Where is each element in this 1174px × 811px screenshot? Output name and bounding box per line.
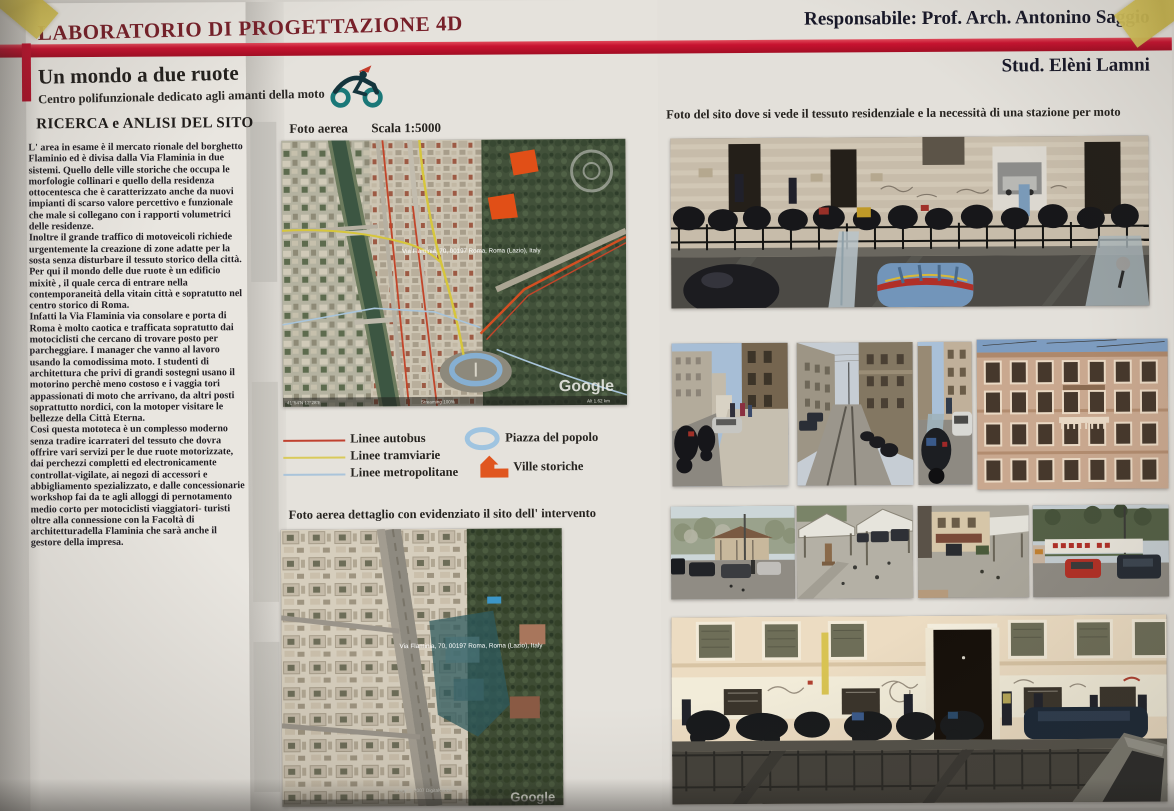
aerial-map-overview: Via Flaminia, 70, 00197 Roma, Roma (Lazi…	[281, 139, 627, 407]
scale-label: Scala 1:5000	[371, 120, 441, 136]
bus-line-swatch	[283, 439, 345, 441]
photo-avenue-tram-tracks	[797, 342, 914, 486]
paper-ghosting	[253, 642, 280, 792]
piazza-ellipse-icon	[463, 427, 501, 451]
photo-street-scooter-narrow	[918, 342, 973, 485]
map-address-overlay: Via Flaminia, 70, 00197 Roma, Roma (Lazi…	[399, 642, 543, 650]
research-heading: RICERCA e ANLISI DEL SITO	[36, 115, 253, 133]
photo-facade-doorway-scooters	[671, 614, 1167, 804]
map-status-streaming: Streaming 100%	[421, 399, 455, 404]
research-text: L' area in esame è il mercato rionale de…	[28, 141, 248, 549]
site-photos-caption: Foto del sito dove si vede il tessuto re…	[666, 104, 1171, 122]
map-legend: Linee autobus Linee tramviarie Linee met…	[283, 425, 627, 487]
research-paragraph: Infatti la Via Flaminia via consolare e …	[29, 311, 248, 425]
professor-name: Responsabile: Prof. Arch. Antonino Saggi…	[804, 7, 1150, 31]
aerial-map-detail: Via Flaminia, 70, 00197 Roma, Roma (Lazi…	[281, 528, 564, 807]
map-status-coords: 41°54'N 12°28'E	[287, 400, 321, 405]
ville-storiche-icon	[479, 452, 509, 478]
legend-ville-label: Ville storiche	[513, 459, 583, 474]
aerial-photo-label: Foto aerea	[289, 120, 348, 136]
map-status-alt: Alt 1.62 km	[587, 398, 610, 403]
photo-street-motorcycles-wide	[670, 136, 1149, 309]
legend-metro-label: Linee metropolitane	[350, 465, 458, 481]
paper-ghosting	[252, 382, 279, 602]
paper-ghosting	[250, 122, 277, 282]
map-address-overlay: Via Flaminia, 70, 00197 Roma, Roma (Lazi…	[402, 247, 541, 255]
research-paragraph: Inoltre il grande traffico di motoveicol…	[29, 231, 247, 266]
photo-market-square-fountain	[797, 505, 914, 599]
photo-market-street-cars	[671, 506, 796, 600]
legend-tram-label: Linee tramviarie	[350, 448, 440, 464]
google-watermark: Google	[559, 378, 614, 395]
red-band-edge	[22, 43, 31, 101]
motorcycle-rider-icon	[328, 63, 386, 109]
legend-bus-label: Linee autobus	[350, 431, 425, 446]
legend-piazza-label: Piazza del popolo	[505, 430, 598, 446]
research-paragraph: L' area in esame è il mercato rionale de…	[28, 141, 247, 233]
student-name: Stud. Elèni Lamni	[1002, 55, 1150, 78]
photo-market-banner-cars	[1033, 504, 1170, 597]
aerial-detail-label: Foto aerea dettaglio con evidenziato il …	[289, 506, 639, 523]
photo-residential-facade	[977, 338, 1169, 489]
research-paragraph: Cosi questa mototeca è un complesso mode…	[30, 423, 249, 549]
metro-line-swatch	[283, 473, 345, 475]
tram-line-swatch	[283, 456, 345, 458]
poster-photo: LABORATORIO DI PROGETTAZIONE 4D Responsa…	[0, 0, 1174, 811]
project-title: Un mondo a due ruote	[38, 61, 239, 90]
research-paragraph: Per qui il mondo delle due ruote è un ed…	[29, 265, 247, 312]
photo-street-sidewalk-bikes	[672, 343, 789, 487]
photo-market-square-awnings	[918, 505, 1030, 598]
